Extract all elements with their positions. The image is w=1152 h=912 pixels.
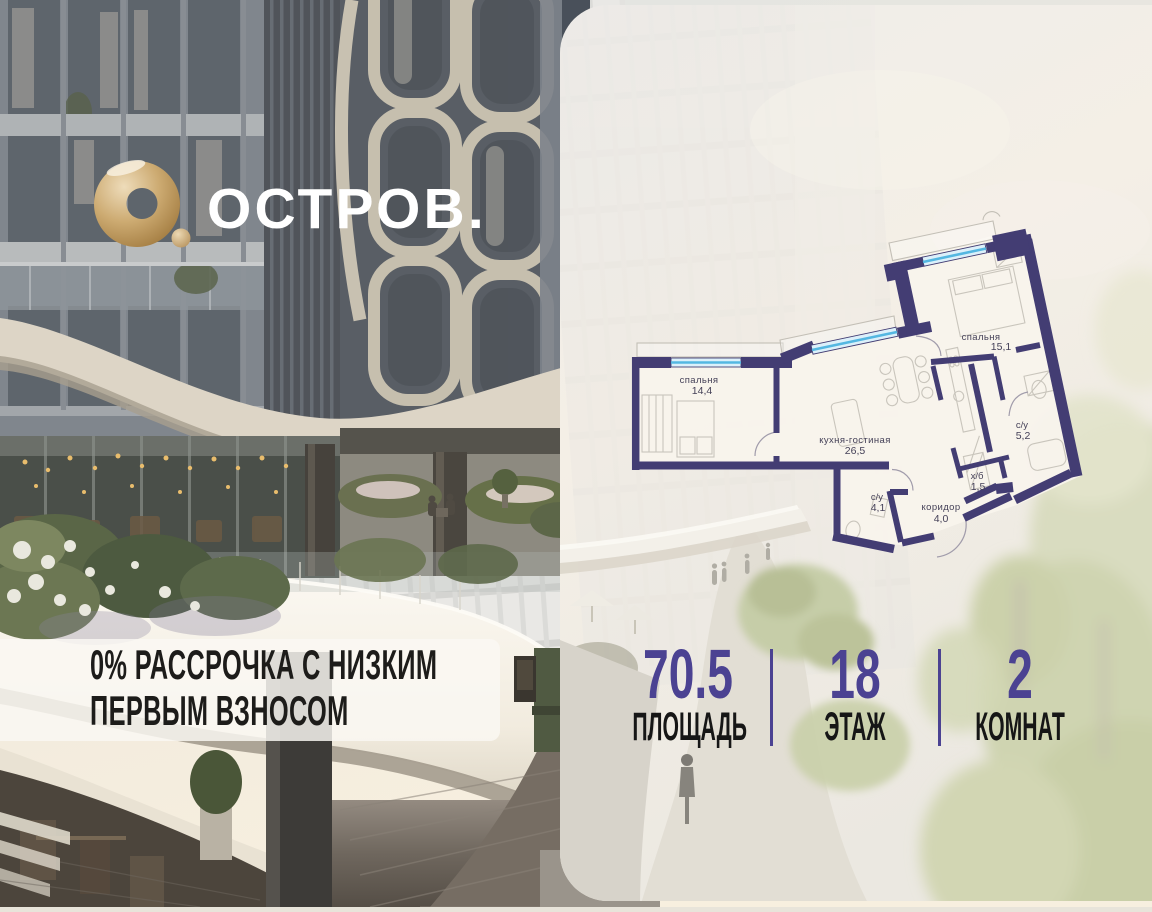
- svg-text:14,4: 14,4: [692, 385, 713, 397]
- svg-text:1,5: 1,5: [971, 481, 986, 493]
- svg-text:26,5: 26,5: [845, 445, 866, 457]
- svg-text:ОСТРОВ.: ОСТРОВ.: [207, 177, 487, 241]
- svg-text:15,1: 15,1: [991, 341, 1012, 353]
- svg-text:коридор: коридор: [921, 502, 960, 513]
- svg-text:5,2: 5,2: [1016, 430, 1031, 442]
- svg-text:4,0: 4,0: [934, 513, 949, 525]
- svg-text:4,1: 4,1: [871, 502, 886, 514]
